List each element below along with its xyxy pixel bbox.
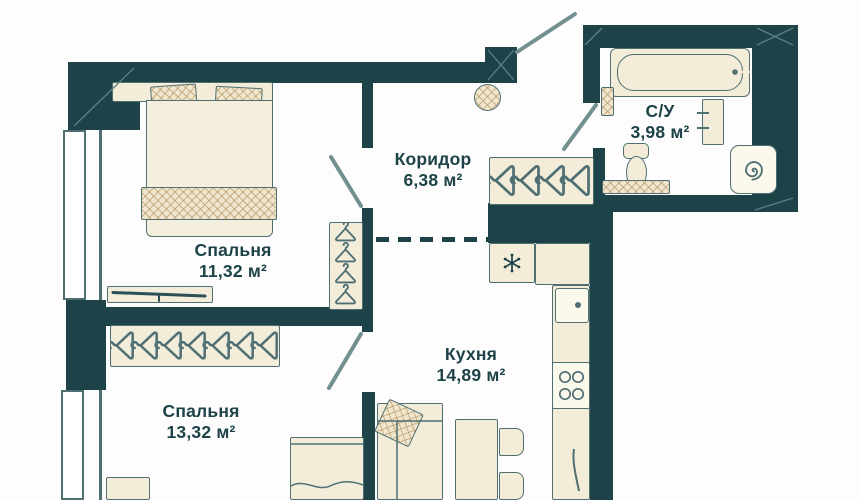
room-area: 11,32 м² [160, 261, 306, 282]
room-name: Коридор [367, 149, 499, 170]
bathtub-inner [617, 54, 743, 91]
washing-machine [730, 145, 777, 194]
window-bedroom1 [63, 130, 86, 300]
room-label-kitchen: Кухня 14,89 м² [406, 344, 536, 385]
kitchen-stove [552, 362, 590, 409]
dining-table [455, 419, 498, 500]
hanger-icons-hallway [490, 158, 592, 203]
room-label-bathroom: С/У 3,98 м² [598, 101, 722, 142]
wardrobe-bedroom1 [329, 222, 363, 310]
bed-bedroom2 [290, 437, 364, 500]
room-name: Спальня [160, 240, 306, 261]
window-bedroom2 [61, 390, 84, 500]
dining-chair-1 [499, 428, 524, 456]
spiral-icon [740, 156, 768, 184]
tv-console-bedroom1 [107, 286, 213, 303]
room-label-bedroom2: Спальня 13,32 м² [128, 401, 274, 442]
dining-chair-2 [499, 472, 524, 500]
wall-bedroom1-right-lower [362, 208, 373, 332]
kitchen-sink [555, 288, 589, 323]
zone-boundary-dashed-line [376, 237, 489, 242]
wall-hall-under-wardrobe [488, 203, 595, 243]
bedroom1-door-leaf [331, 157, 361, 206]
hanger-icons-bedroom2 [111, 326, 278, 365]
room-area: 13,32 м² [128, 422, 274, 443]
floor-plan: Спальня 11,32 м² Коридор 6,38 м² С/У 3,9… [0, 0, 860, 500]
snowflake-icon [500, 251, 524, 275]
room-label-bedroom1: Спальня 11,32 м² [160, 240, 306, 281]
bathroom-shelf-strip [602, 180, 670, 194]
hanger-icons-bedroom1 [330, 223, 361, 308]
burners-icon [554, 365, 588, 407]
wardrobe-hallway [489, 157, 594, 205]
room-name: С/У [598, 101, 722, 122]
wall-kitchen-right [590, 195, 613, 500]
bathroom-door-leaf [564, 105, 596, 149]
wall-entry-stub [485, 47, 517, 83]
window-bedroom2-inner-line [99, 390, 102, 500]
wardrobe-bedroom2 [110, 325, 280, 367]
room-area: 14,89 м² [406, 365, 536, 386]
kitchen-counter-top [535, 243, 590, 285]
bed1-blanket [141, 187, 277, 220]
wall-bath-bottom [595, 195, 798, 212]
room-area: 3,98 м² [598, 122, 722, 143]
desk-bedroom2 [106, 477, 150, 500]
room-area: 6,38 м² [367, 170, 499, 191]
room-label-corridor: Коридор 6,38 м² [367, 149, 499, 190]
wall-bath-left-upper [583, 48, 600, 103]
wall-bedroom1-right-upper [362, 83, 373, 148]
fridge [489, 243, 535, 283]
wall-left-middle [66, 300, 106, 390]
sink-drain [575, 302, 581, 308]
room-name: Кухня [406, 344, 536, 365]
room-name: Спальня [128, 401, 274, 422]
window-bedroom1-inner-line [99, 130, 102, 300]
pouf-hallway [474, 84, 501, 111]
bedroom2-door-leaf [329, 334, 361, 388]
entry-door-leaf [517, 14, 575, 52]
